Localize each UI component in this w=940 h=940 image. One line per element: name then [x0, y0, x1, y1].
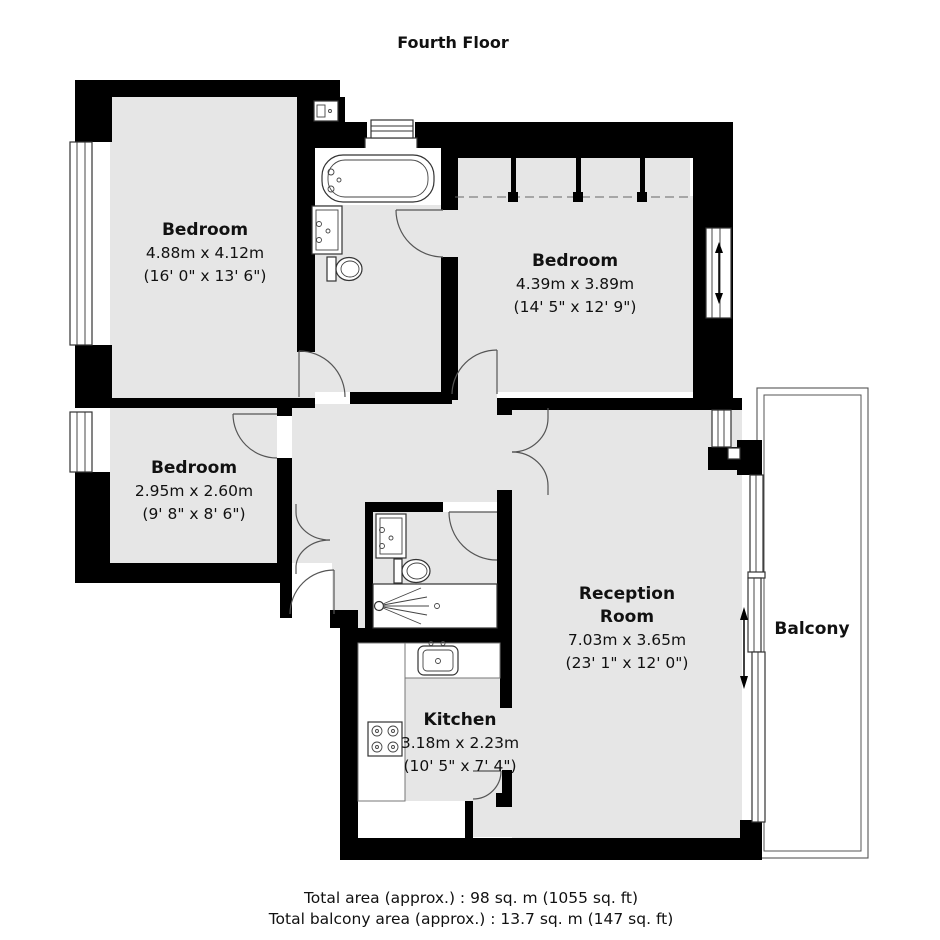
- bathroom-sink: [312, 206, 342, 254]
- reception-name-line1: Reception: [579, 584, 675, 604]
- showerroom-toilet: [394, 559, 430, 583]
- bedroom2-metric: 4.39m x 3.89m: [516, 275, 634, 293]
- bedroom1-metric: 4.88m x 4.12m: [146, 244, 264, 262]
- shower: [373, 584, 497, 628]
- corridor-floor-upper: [292, 502, 365, 563]
- floorplan-page: Fourth Floor Bedroom 4.88m x 4.12m (16' …: [0, 0, 940, 940]
- wall-vent: [314, 101, 338, 121]
- bedroom2-floor: [458, 196, 693, 392]
- bedroom3-metric: 2.95m x 2.60m: [135, 482, 253, 500]
- reception-door-gap: [497, 412, 512, 492]
- kitchen-sink: [418, 642, 458, 676]
- lobby-floor: [315, 297, 441, 392]
- kitchen-imperial: (10' 5" x 7' 4"): [403, 757, 516, 775]
- bedroom3-name: Bedroom: [151, 458, 237, 478]
- closet-row-floor: [455, 158, 690, 196]
- bedroom3-window: [70, 412, 92, 472]
- bedroom1-name: Bedroom: [162, 220, 248, 240]
- bedroom1-window: [70, 142, 92, 345]
- bedroom1-door-gap: [297, 352, 315, 398]
- kitchen-hob: [368, 722, 402, 756]
- reception-name-line2: Room: [600, 607, 654, 627]
- bathroom-toilet: [327, 257, 362, 281]
- balcony-name: Balcony: [774, 619, 849, 639]
- hallway-floor: [292, 404, 497, 502]
- kitchen-name: Kitchen: [424, 710, 497, 730]
- total-area-text: Total area (approx.) : 98 sq. m (1055 sq…: [303, 889, 638, 907]
- entrance-door: [290, 570, 334, 614]
- bedroom1-imperial: (16' 0" x 13' 6"): [144, 267, 267, 285]
- bedroom3-imperial: (9' 8" x 8' 6"): [142, 505, 245, 523]
- showerroom-sink: [376, 514, 406, 558]
- bathroom-door-gap: [441, 210, 458, 257]
- plan-title: Fourth Floor: [397, 33, 509, 52]
- kitchen-metric: 3.18m x 2.23m: [401, 734, 519, 752]
- total-balcony-area-text: Total balcony area (approx.) : 13.7 sq. …: [268, 910, 674, 928]
- floorplan-drawing: Fourth Floor Bedroom 4.88m x 4.12m (16' …: [0, 0, 940, 940]
- bathtub: [315, 148, 441, 205]
- reception-metric: 7.03m x 3.65m: [568, 631, 686, 649]
- reception-imperial: (23' 1" x 12' 0"): [566, 654, 689, 672]
- bedroom2-name: Bedroom: [532, 251, 618, 271]
- bedroom2-door-gap: [452, 392, 497, 406]
- bedroom2-imperial: (14' 5" x 12' 9"): [514, 298, 637, 316]
